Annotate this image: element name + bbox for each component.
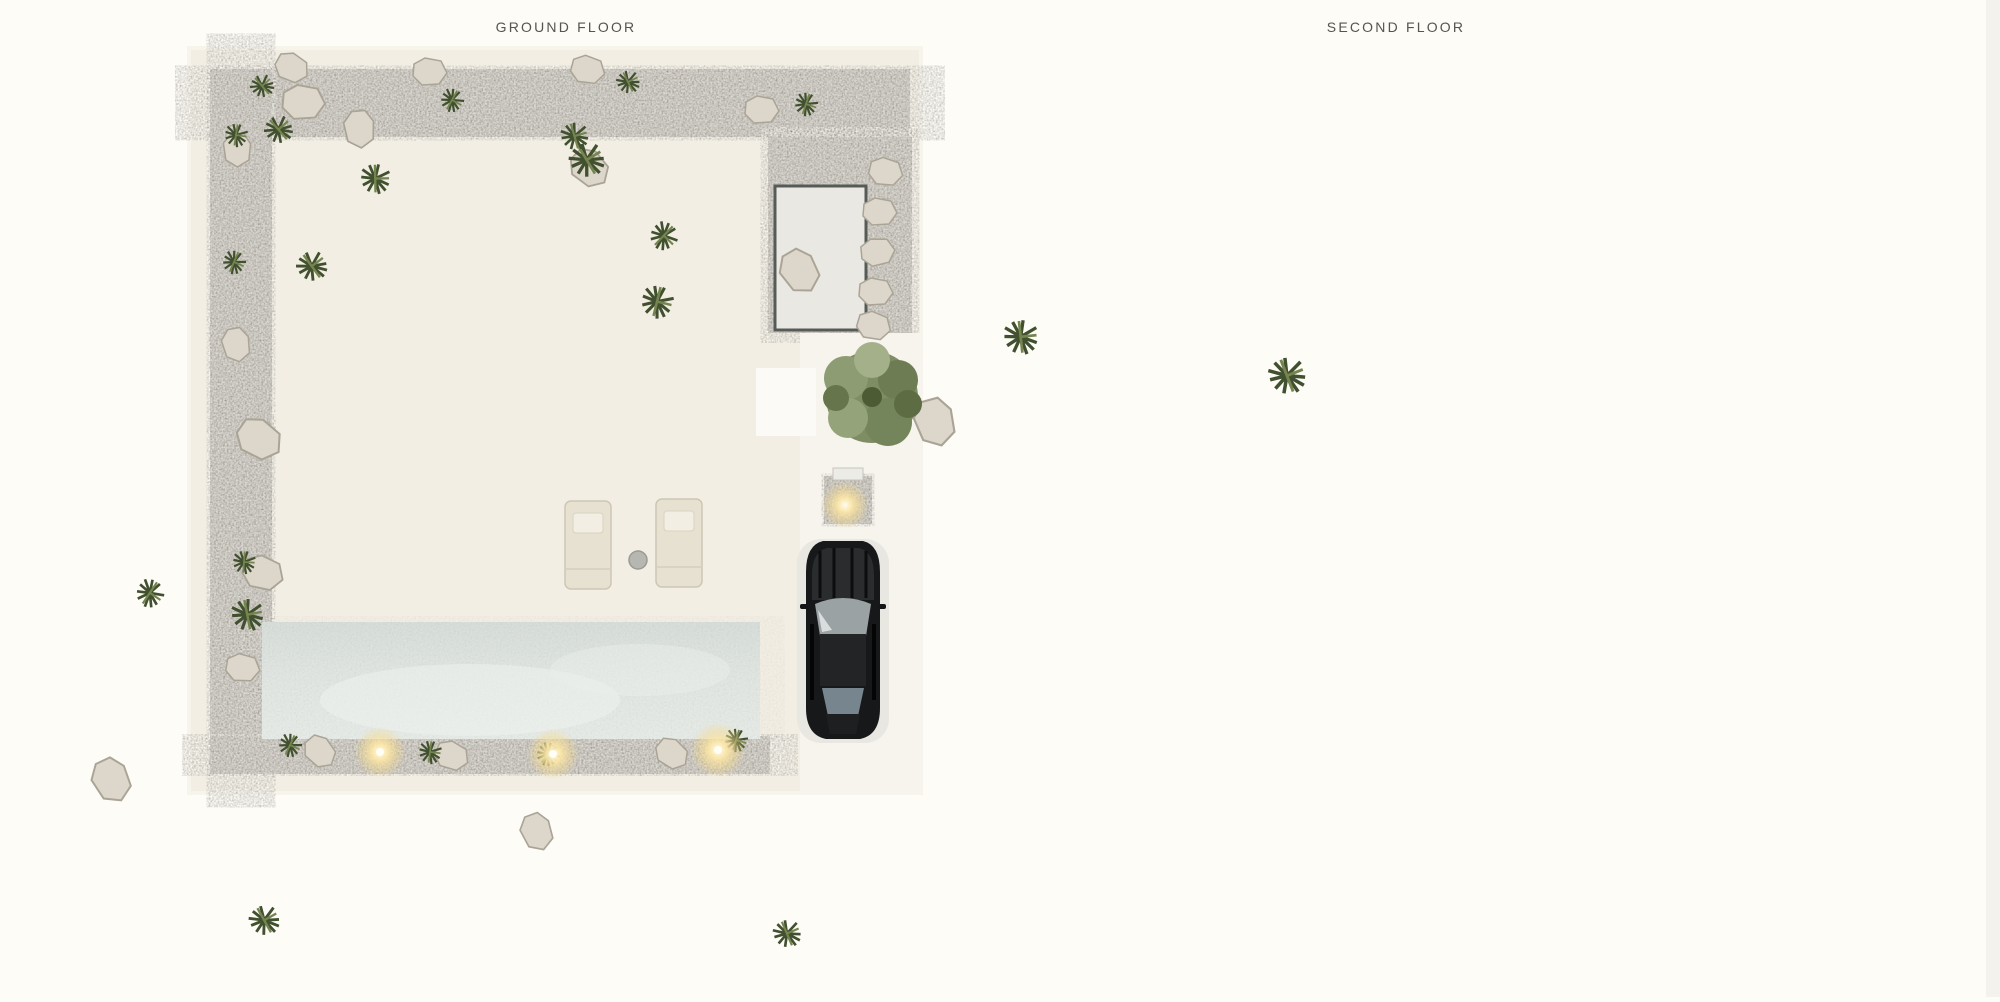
svg-text:GROUND FLOOR: GROUND FLOOR: [496, 19, 637, 35]
svg-text:SECOND FLOOR: SECOND FLOOR: [1327, 19, 1465, 35]
